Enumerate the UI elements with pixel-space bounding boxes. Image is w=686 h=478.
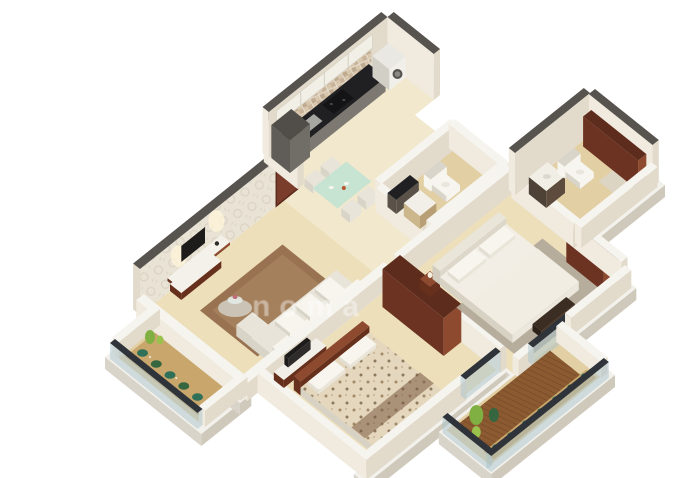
centerpiece: [342, 186, 346, 190]
bush-row-4: [178, 382, 189, 390]
bright-plant-2: [157, 336, 164, 345]
bush-row-1: [137, 349, 148, 357]
bush-row-3: [165, 371, 176, 379]
fern-1: [469, 405, 483, 425]
toilet2-seat: [576, 170, 584, 175]
bush-flower-2: [175, 377, 177, 379]
plate-2: [344, 182, 349, 185]
bath2-sink: [543, 174, 551, 179]
burner-1: [330, 103, 333, 105]
toilet1-seat: [441, 182, 450, 187]
deco-ball-white: [220, 237, 224, 241]
spotlight-glow-2: [208, 210, 224, 232]
bush-row-2: [151, 360, 162, 368]
table-flowers: [233, 295, 238, 299]
deco-ball-dark: [215, 241, 219, 245]
bright-plant-1: [145, 330, 155, 344]
bush-row-5: [192, 393, 203, 401]
cabinet-divider-2: [324, 72, 325, 87]
floor-plan-page: noma: [0, 0, 686, 478]
cabinet-divider-1: [300, 91, 301, 106]
wm-door-inner: [395, 71, 401, 77]
bed2-lamp: [428, 272, 433, 278]
burner-2: [342, 99, 345, 101]
plate-1: [329, 186, 334, 189]
floor-plan-render: [0, 0, 686, 478]
fern-2: [489, 408, 499, 422]
cabinet-divider-3: [348, 53, 349, 68]
bush-flower-1: [149, 356, 151, 358]
